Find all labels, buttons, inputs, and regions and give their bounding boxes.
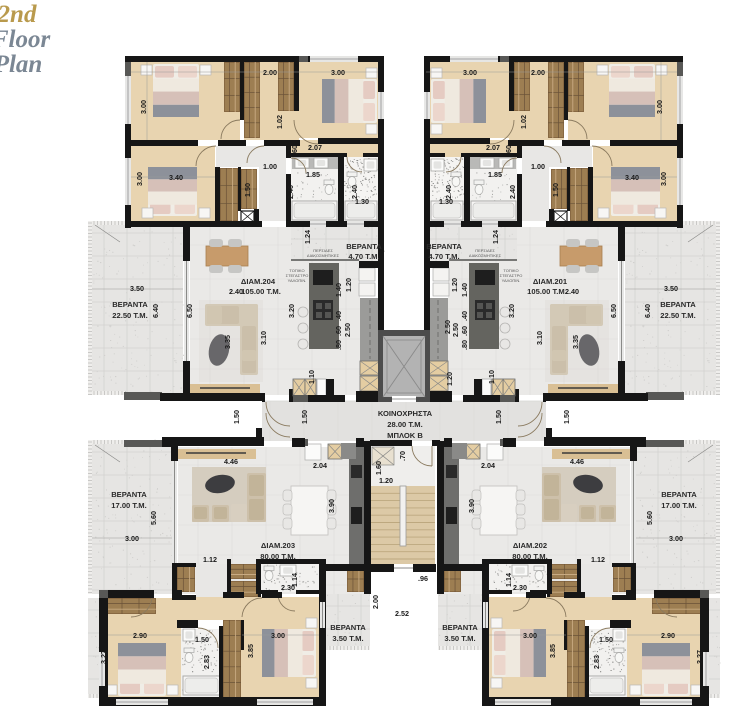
svg-text:3.00: 3.00 bbox=[655, 100, 664, 114]
svg-text:1.14: 1.14 bbox=[504, 573, 513, 587]
svg-text:3.35: 3.35 bbox=[571, 335, 580, 349]
svg-text:3.20: 3.20 bbox=[287, 304, 296, 318]
svg-text:2.00: 2.00 bbox=[531, 68, 545, 77]
svg-text:22.50 Τ.Μ.: 22.50 Τ.Μ. bbox=[660, 311, 695, 320]
svg-text:3.00: 3.00 bbox=[139, 100, 148, 114]
svg-text:1.10: 1.10 bbox=[307, 370, 316, 384]
svg-text:ΥΑΛΟΠΙΝ.: ΥΑΛΟΠΙΝ. bbox=[502, 278, 521, 283]
svg-text:ΒΕΡΑΝΤΑ: ΒΕΡΑΝΤΑ bbox=[660, 300, 696, 309]
svg-text:3.50: 3.50 bbox=[130, 284, 144, 293]
svg-text:5.60: 5.60 bbox=[149, 511, 158, 525]
svg-text:2.40: 2.40 bbox=[229, 287, 243, 296]
svg-text:ΒΕΡΑΝΤΑ: ΒΕΡΑΝΤΑ bbox=[112, 300, 148, 309]
svg-text:2.90: 2.90 bbox=[133, 631, 147, 640]
svg-text:80.00 Τ.Μ.: 80.00 Τ.Μ. bbox=[260, 552, 295, 561]
svg-text:80.00 Τ.Μ.: 80.00 Τ.Μ. bbox=[512, 552, 547, 561]
svg-text:ΥΑΛΟΠΙΝ.: ΥΑΛΟΠΙΝ. bbox=[288, 278, 307, 283]
svg-text:3.85: 3.85 bbox=[246, 644, 255, 658]
svg-text:3.00: 3.00 bbox=[463, 68, 477, 77]
svg-text:3.00: 3.00 bbox=[523, 631, 537, 640]
svg-text:2.50: 2.50 bbox=[451, 323, 460, 337]
svg-text:1.50: 1.50 bbox=[551, 183, 560, 197]
svg-text:1.02: 1.02 bbox=[519, 115, 528, 129]
svg-text:3.00: 3.00 bbox=[331, 68, 345, 77]
svg-text:ΒΕΡΑΝΤΑ: ΒΕΡΑΝΤΑ bbox=[426, 242, 462, 251]
svg-text:.80: .80 bbox=[460, 340, 469, 350]
svg-text:.60: .60 bbox=[334, 326, 343, 336]
svg-text:1.50: 1.50 bbox=[562, 410, 571, 424]
svg-text:3.10: 3.10 bbox=[535, 331, 544, 345]
svg-text:17.00 Τ.Μ.: 17.00 Τ.Μ. bbox=[661, 501, 696, 510]
svg-text:6.40: 6.40 bbox=[643, 304, 652, 318]
svg-text:1.30: 1.30 bbox=[439, 197, 453, 206]
svg-text:3.00: 3.00 bbox=[125, 534, 139, 543]
svg-text:4.46: 4.46 bbox=[224, 457, 238, 466]
svg-text:ΔΙΑΜ.203: ΔΙΑΜ.203 bbox=[261, 541, 295, 550]
svg-text:.60: .60 bbox=[460, 326, 469, 336]
svg-text:2.00: 2.00 bbox=[263, 68, 277, 77]
svg-text:ΜΠΛΟΚ Β: ΜΠΛΟΚ Β bbox=[387, 431, 423, 440]
svg-text:Floor: Floor bbox=[0, 26, 50, 53]
svg-text:1.12: 1.12 bbox=[203, 555, 217, 564]
svg-text:.40: .40 bbox=[460, 311, 469, 321]
svg-text:2.50: 2.50 bbox=[443, 320, 452, 334]
svg-text:1.30: 1.30 bbox=[355, 197, 369, 206]
svg-text:1.50: 1.50 bbox=[195, 635, 209, 644]
svg-text:1.85: 1.85 bbox=[488, 170, 502, 179]
svg-text:3.00: 3.00 bbox=[669, 534, 683, 543]
svg-text:2.04: 2.04 bbox=[481, 461, 495, 470]
svg-text:ΒΕΡΑΝΤΑ: ΒΕΡΑΝΤΑ bbox=[330, 623, 366, 632]
svg-text:1.14: 1.14 bbox=[290, 573, 299, 587]
svg-text:3.35: 3.35 bbox=[223, 335, 232, 349]
svg-text:1.85: 1.85 bbox=[306, 170, 320, 179]
svg-text:.80: .80 bbox=[334, 340, 343, 350]
svg-text:ΔΙΑΚΟΣΜΗΤΙΚΕΣ: ΔΙΑΚΟΣΜΗΤΙΚΕΣ bbox=[469, 253, 502, 258]
svg-text:2nd: 2nd bbox=[0, 1, 37, 28]
svg-text:2.83: 2.83 bbox=[592, 655, 601, 669]
svg-text:.70: .70 bbox=[398, 451, 407, 461]
svg-text:1.02: 1.02 bbox=[275, 115, 284, 129]
svg-text:6.40: 6.40 bbox=[151, 304, 160, 318]
svg-text:3.00: 3.00 bbox=[659, 172, 668, 186]
svg-text:ΚΟΙΝΟΧΡΗΣΤΑ: ΚΟΙΝΟΧΡΗΣΤΑ bbox=[378, 409, 433, 418]
svg-text:.96: .96 bbox=[418, 574, 428, 583]
svg-text:28.00 Τ.Μ.: 28.00 Τ.Μ. bbox=[387, 420, 422, 429]
svg-text:2.40: 2.40 bbox=[565, 287, 579, 296]
svg-text:3.40: 3.40 bbox=[169, 173, 183, 182]
svg-text:1.20: 1.20 bbox=[450, 278, 459, 292]
svg-text:3.00: 3.00 bbox=[271, 631, 285, 640]
svg-text:1.00: 1.00 bbox=[531, 162, 545, 171]
svg-text:ΔΙΑΜ.201: ΔΙΑΜ.201 bbox=[533, 277, 568, 286]
svg-text:3.00: 3.00 bbox=[135, 172, 144, 186]
svg-text:4.70 Τ.Μ.: 4.70 Τ.Μ. bbox=[428, 252, 459, 261]
svg-text:.60: .60 bbox=[290, 145, 299, 155]
svg-text:2.07: 2.07 bbox=[308, 143, 322, 152]
svg-text:3.50 Τ.Μ.: 3.50 Τ.Μ. bbox=[444, 634, 475, 643]
svg-text:ΔΙΑΜ.204: ΔΙΑΜ.204 bbox=[241, 277, 276, 286]
svg-text:1.20: 1.20 bbox=[379, 476, 393, 485]
svg-text:1.10: 1.10 bbox=[487, 370, 496, 384]
svg-text:1.00: 1.00 bbox=[263, 162, 277, 171]
svg-text:5.60: 5.60 bbox=[645, 511, 654, 525]
svg-text:1.40: 1.40 bbox=[334, 283, 343, 297]
svg-text:3.50: 3.50 bbox=[664, 284, 678, 293]
svg-text:4.70 Τ.Μ.: 4.70 Τ.Μ. bbox=[348, 252, 379, 261]
svg-text:6.50: 6.50 bbox=[609, 304, 618, 318]
svg-text:Plan: Plan bbox=[0, 51, 42, 78]
svg-text:1.24: 1.24 bbox=[303, 230, 312, 244]
svg-text:.40: .40 bbox=[334, 311, 343, 321]
svg-text:2.40: 2.40 bbox=[508, 185, 517, 199]
svg-text:3.20: 3.20 bbox=[507, 304, 516, 318]
svg-text:1.50: 1.50 bbox=[599, 635, 613, 644]
svg-text:ΒΕΡΑΝΤΑ: ΒΕΡΑΝΤΑ bbox=[111, 490, 147, 499]
svg-text:1.40: 1.40 bbox=[460, 283, 469, 297]
svg-text:3.90: 3.90 bbox=[467, 499, 476, 513]
svg-text:105.00 Τ.Μ.: 105.00 Τ.Μ. bbox=[241, 287, 281, 296]
svg-text:3.10: 3.10 bbox=[259, 331, 268, 345]
svg-text:1.50: 1.50 bbox=[243, 183, 252, 197]
svg-text:1.60: 1.60 bbox=[374, 461, 383, 475]
svg-text:2.04: 2.04 bbox=[313, 461, 327, 470]
svg-text:3.50 Τ.Μ.: 3.50 Τ.Μ. bbox=[332, 634, 363, 643]
svg-text:1.12: 1.12 bbox=[591, 555, 605, 564]
svg-text:2.07: 2.07 bbox=[486, 143, 500, 152]
svg-text:2.90: 2.90 bbox=[661, 631, 675, 640]
svg-text:ΔΙΑΚΟΣΜΗΤΙΚΕΣ: ΔΙΑΚΟΣΜΗΤΙΚΕΣ bbox=[307, 253, 340, 258]
svg-text:3.40: 3.40 bbox=[625, 173, 639, 182]
svg-text:3.27: 3.27 bbox=[695, 650, 704, 664]
svg-text:4.46: 4.46 bbox=[570, 457, 584, 466]
svg-text:6.50: 6.50 bbox=[185, 304, 194, 318]
svg-text:ΒΕΡΑΝΤΑ: ΒΕΡΑΝΤΑ bbox=[661, 490, 697, 499]
svg-text:3.90: 3.90 bbox=[327, 499, 336, 513]
svg-text:2.50: 2.50 bbox=[343, 323, 352, 337]
svg-text:2.83: 2.83 bbox=[202, 655, 211, 669]
svg-text:3.27: 3.27 bbox=[99, 650, 108, 664]
svg-text:2.00: 2.00 bbox=[371, 595, 380, 609]
svg-text:1.50: 1.50 bbox=[232, 410, 241, 424]
svg-text:ΒΕΡΑΝΤΑ: ΒΕΡΑΝΤΑ bbox=[346, 242, 382, 251]
svg-text:1.24: 1.24 bbox=[491, 230, 500, 244]
svg-text:ΔΙΑΜ.202: ΔΙΑΜ.202 bbox=[513, 541, 547, 550]
svg-text:17.00 Τ.Μ.: 17.00 Τ.Μ. bbox=[111, 501, 146, 510]
svg-text:1.50: 1.50 bbox=[300, 410, 309, 424]
svg-text:105.00 Τ.Μ.: 105.00 Τ.Μ. bbox=[527, 287, 567, 296]
svg-text:2.30: 2.30 bbox=[513, 583, 527, 592]
svg-text:1.20: 1.20 bbox=[344, 278, 353, 292]
svg-text:1.20: 1.20 bbox=[445, 372, 454, 386]
svg-text:22.50 Τ.Μ.: 22.50 Τ.Μ. bbox=[112, 311, 147, 320]
svg-text:2.40: 2.40 bbox=[286, 185, 295, 199]
svg-text:1.50: 1.50 bbox=[494, 410, 503, 424]
svg-text:.60: .60 bbox=[504, 145, 513, 155]
svg-text:2.52: 2.52 bbox=[395, 609, 409, 618]
svg-text:3.85: 3.85 bbox=[548, 644, 557, 658]
svg-text:ΒΕΡΑΝΤΑ: ΒΕΡΑΝΤΑ bbox=[442, 623, 478, 632]
